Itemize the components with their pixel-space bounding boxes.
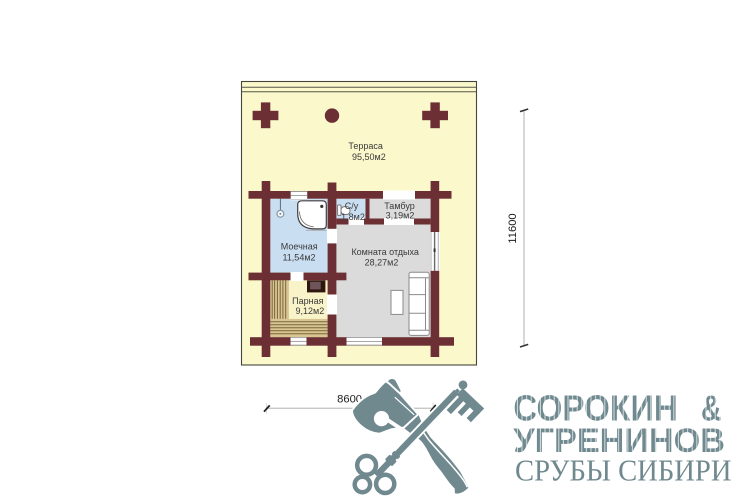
- svg-text:11,54м2: 11,54м2: [282, 253, 315, 263]
- svg-text:11600: 11600: [507, 213, 519, 243]
- svg-text:СРУБЫ СИБИРИ: СРУБЫ СИБИРИ: [515, 454, 732, 488]
- svg-text:28,27м2: 28,27м2: [365, 257, 399, 267]
- svg-text:С/у: С/у: [345, 201, 359, 211]
- svg-text:Парная: Парная: [292, 296, 323, 306]
- svg-text:Моечная: Моечная: [281, 242, 318, 252]
- svg-text:3,19м2: 3,19м2: [386, 210, 415, 220]
- svg-text:Терраса: Терраса: [348, 141, 383, 151]
- svg-text:1,8м2: 1,8м2: [341, 212, 365, 222]
- svg-text:9,12м2: 9,12м2: [296, 306, 325, 316]
- svg-text:Комната отдыха: Комната отдыха: [351, 247, 419, 257]
- svg-text:95,50м2: 95,50м2: [352, 152, 386, 162]
